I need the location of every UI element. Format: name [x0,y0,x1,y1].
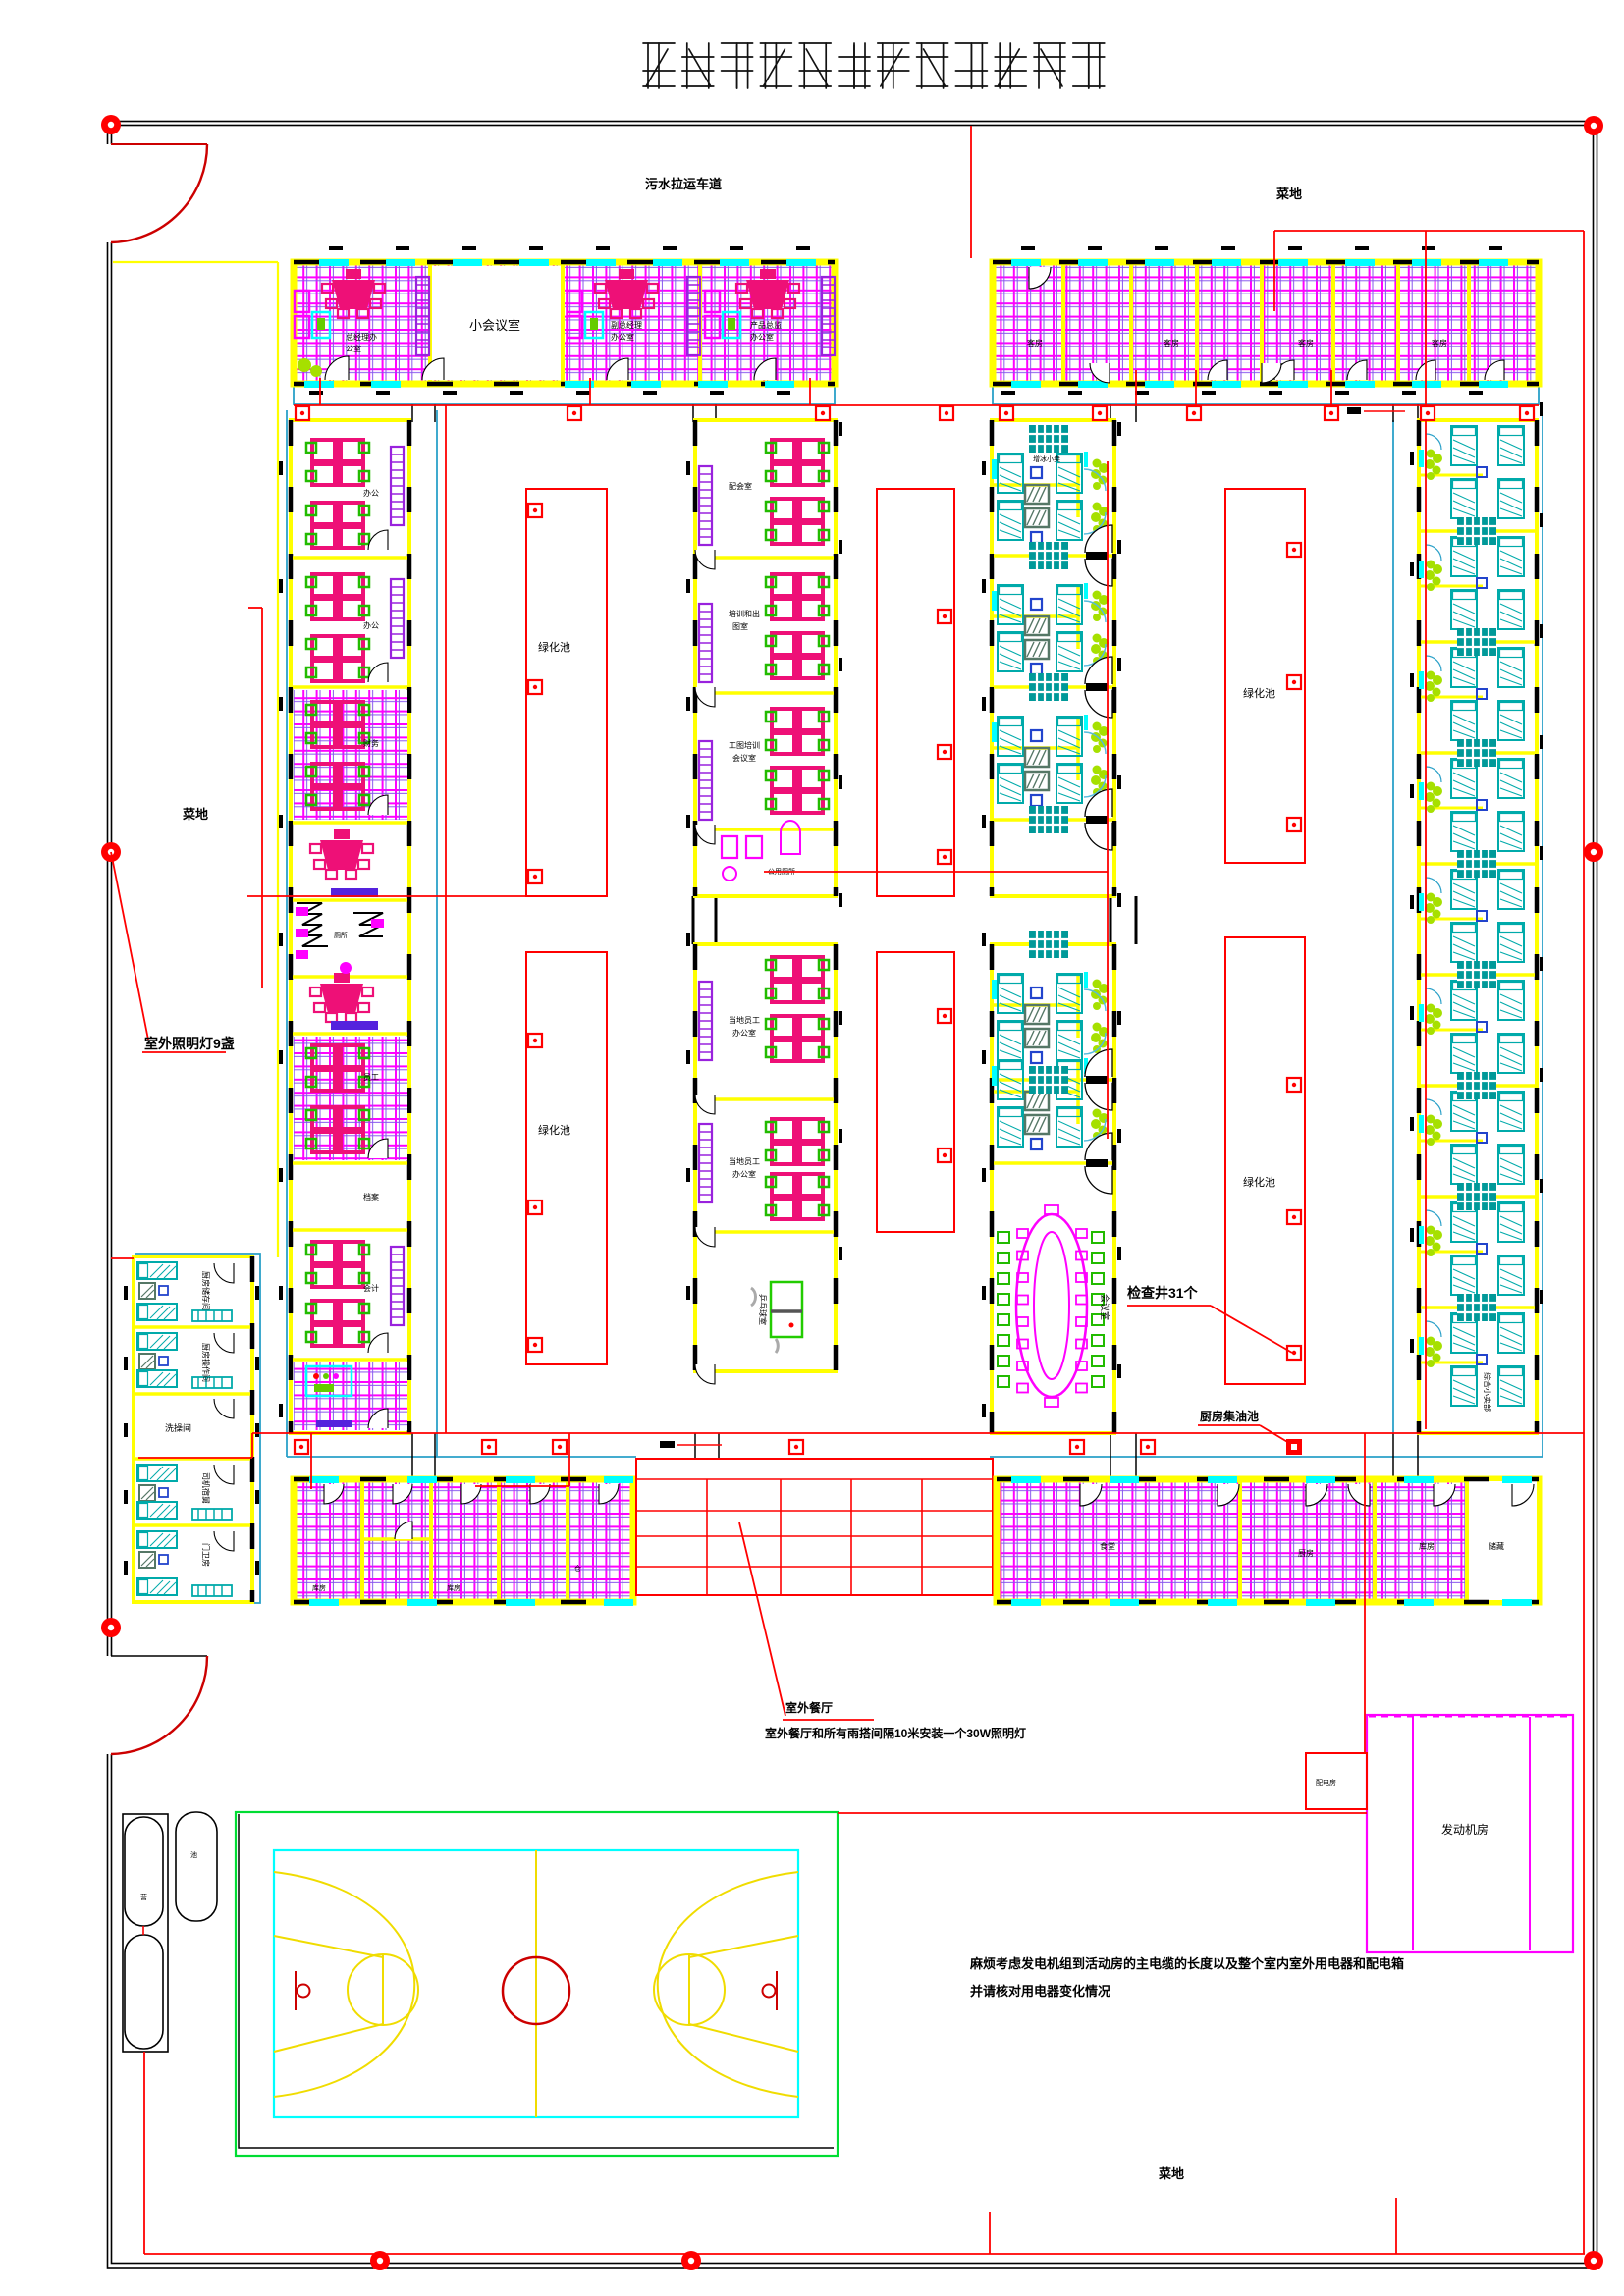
svg-text:员工: 员工 [363,1073,379,1082]
svg-text:办公: 办公 [363,488,379,498]
svg-text:库房: 库房 [447,1583,460,1592]
svg-text:厨房: 厨房 [1298,1548,1314,1558]
svg-text:绿化池: 绿化池 [538,640,570,654]
svg-text:厕所: 厕所 [334,931,348,939]
svg-text:绿化池: 绿化池 [1243,686,1275,700]
svg-text:配会室: 配会室 [729,481,752,491]
svg-text:客房: 客房 [1027,338,1043,347]
svg-text:会议室: 会议室 [732,753,756,763]
svg-text:发动机房: 发动机房 [1441,1822,1489,1837]
svg-text:当地员工: 当地员工 [729,1156,760,1166]
svg-text:厨房储存间: 厨房储存间 [201,1271,211,1310]
svg-text:当地员工: 当地员工 [729,1015,760,1025]
svg-text:门卫房: 门卫房 [201,1543,211,1567]
svg-text:工图培训: 工图培训 [729,740,760,750]
svg-text:检查井31个: 检查井31个 [1127,1285,1199,1301]
svg-text:麻烦考虑发电机组到活动房的主电缆的长度以及整个室内室外用电器: 麻烦考虑发电机组到活动房的主电缆的长度以及整个室内室外用电器和配电箱 [969,1956,1404,1971]
svg-text:营: 营 [140,1893,147,1901]
svg-text:图室: 图室 [732,621,748,631]
svg-text:公室: 公室 [346,344,361,353]
svg-text:库房: 库房 [312,1583,326,1592]
svg-text:菜地: 菜地 [1158,2166,1184,2181]
svg-text:财务: 财务 [363,738,379,748]
svg-text:副总经理: 副总经理 [611,320,642,330]
svg-text:室外照明灯9盏: 室外照明灯9盏 [144,1036,235,1051]
svg-text:办公室: 办公室 [732,1028,756,1038]
svg-text:室外餐厅: 室外餐厅 [785,1700,833,1715]
svg-text:档案: 档案 [363,1192,379,1201]
svg-text:厨房操作间: 厨房操作间 [201,1343,211,1382]
svg-text:会议室: 会议室 [1100,1294,1110,1320]
svg-text:办公室: 办公室 [750,332,774,342]
svg-text:产品总监: 产品总监 [750,320,782,330]
svg-text:综合小卖部: 综合小卖部 [1483,1372,1492,1412]
svg-text:池: 池 [190,1850,197,1859]
svg-text:室外餐厅和所有雨搭间隔10米安装一个30W照明灯: 室外餐厅和所有雨搭间隔10米安装一个30W照明灯 [765,1726,1026,1740]
svg-text:司机宿舅: 司机宿舅 [201,1472,211,1504]
svg-text:绿化池: 绿化池 [538,1123,570,1137]
svg-text:库房: 库房 [1419,1541,1435,1551]
svg-text:会计: 会计 [363,1283,379,1293]
svg-text:小会议室: 小会议室 [469,318,520,333]
svg-text:厨房集油池: 厨房集油池 [1200,1409,1259,1423]
svg-text:培训和出: 培训和出 [729,609,760,618]
svg-text:办公室: 办公室 [611,332,634,342]
svg-text:客房: 客房 [1164,338,1179,347]
svg-text:食堂: 食堂 [1100,1541,1115,1551]
svg-text:洗操间: 洗操间 [165,1422,191,1433]
svg-text:储藏: 储藏 [1489,1541,1504,1551]
svg-text:客房: 客房 [1432,338,1447,347]
svg-text:增冰小卖: 增冰小卖 [1033,454,1060,463]
svg-text:绿化池: 绿化池 [1243,1175,1275,1189]
svg-text:办公: 办公 [363,620,379,630]
svg-text:菜地: 菜地 [1275,187,1302,201]
svg-text:客房: 客房 [1298,338,1314,347]
svg-text:乒乓球室: 乒乓球室 [758,1294,768,1325]
svg-text:菜地: 菜地 [182,807,208,822]
svg-text:总经理办: 总经理办 [346,332,377,342]
svg-text:仓: 仓 [574,1564,581,1573]
svg-text:污水拉运车道: 污水拉运车道 [645,177,722,191]
svg-text:配电房: 配电房 [1316,1778,1336,1787]
svg-text:并请核对用电器变化情况: 并请核对用电器变化情况 [970,1984,1110,1999]
svg-text:办公室: 办公室 [732,1169,756,1179]
